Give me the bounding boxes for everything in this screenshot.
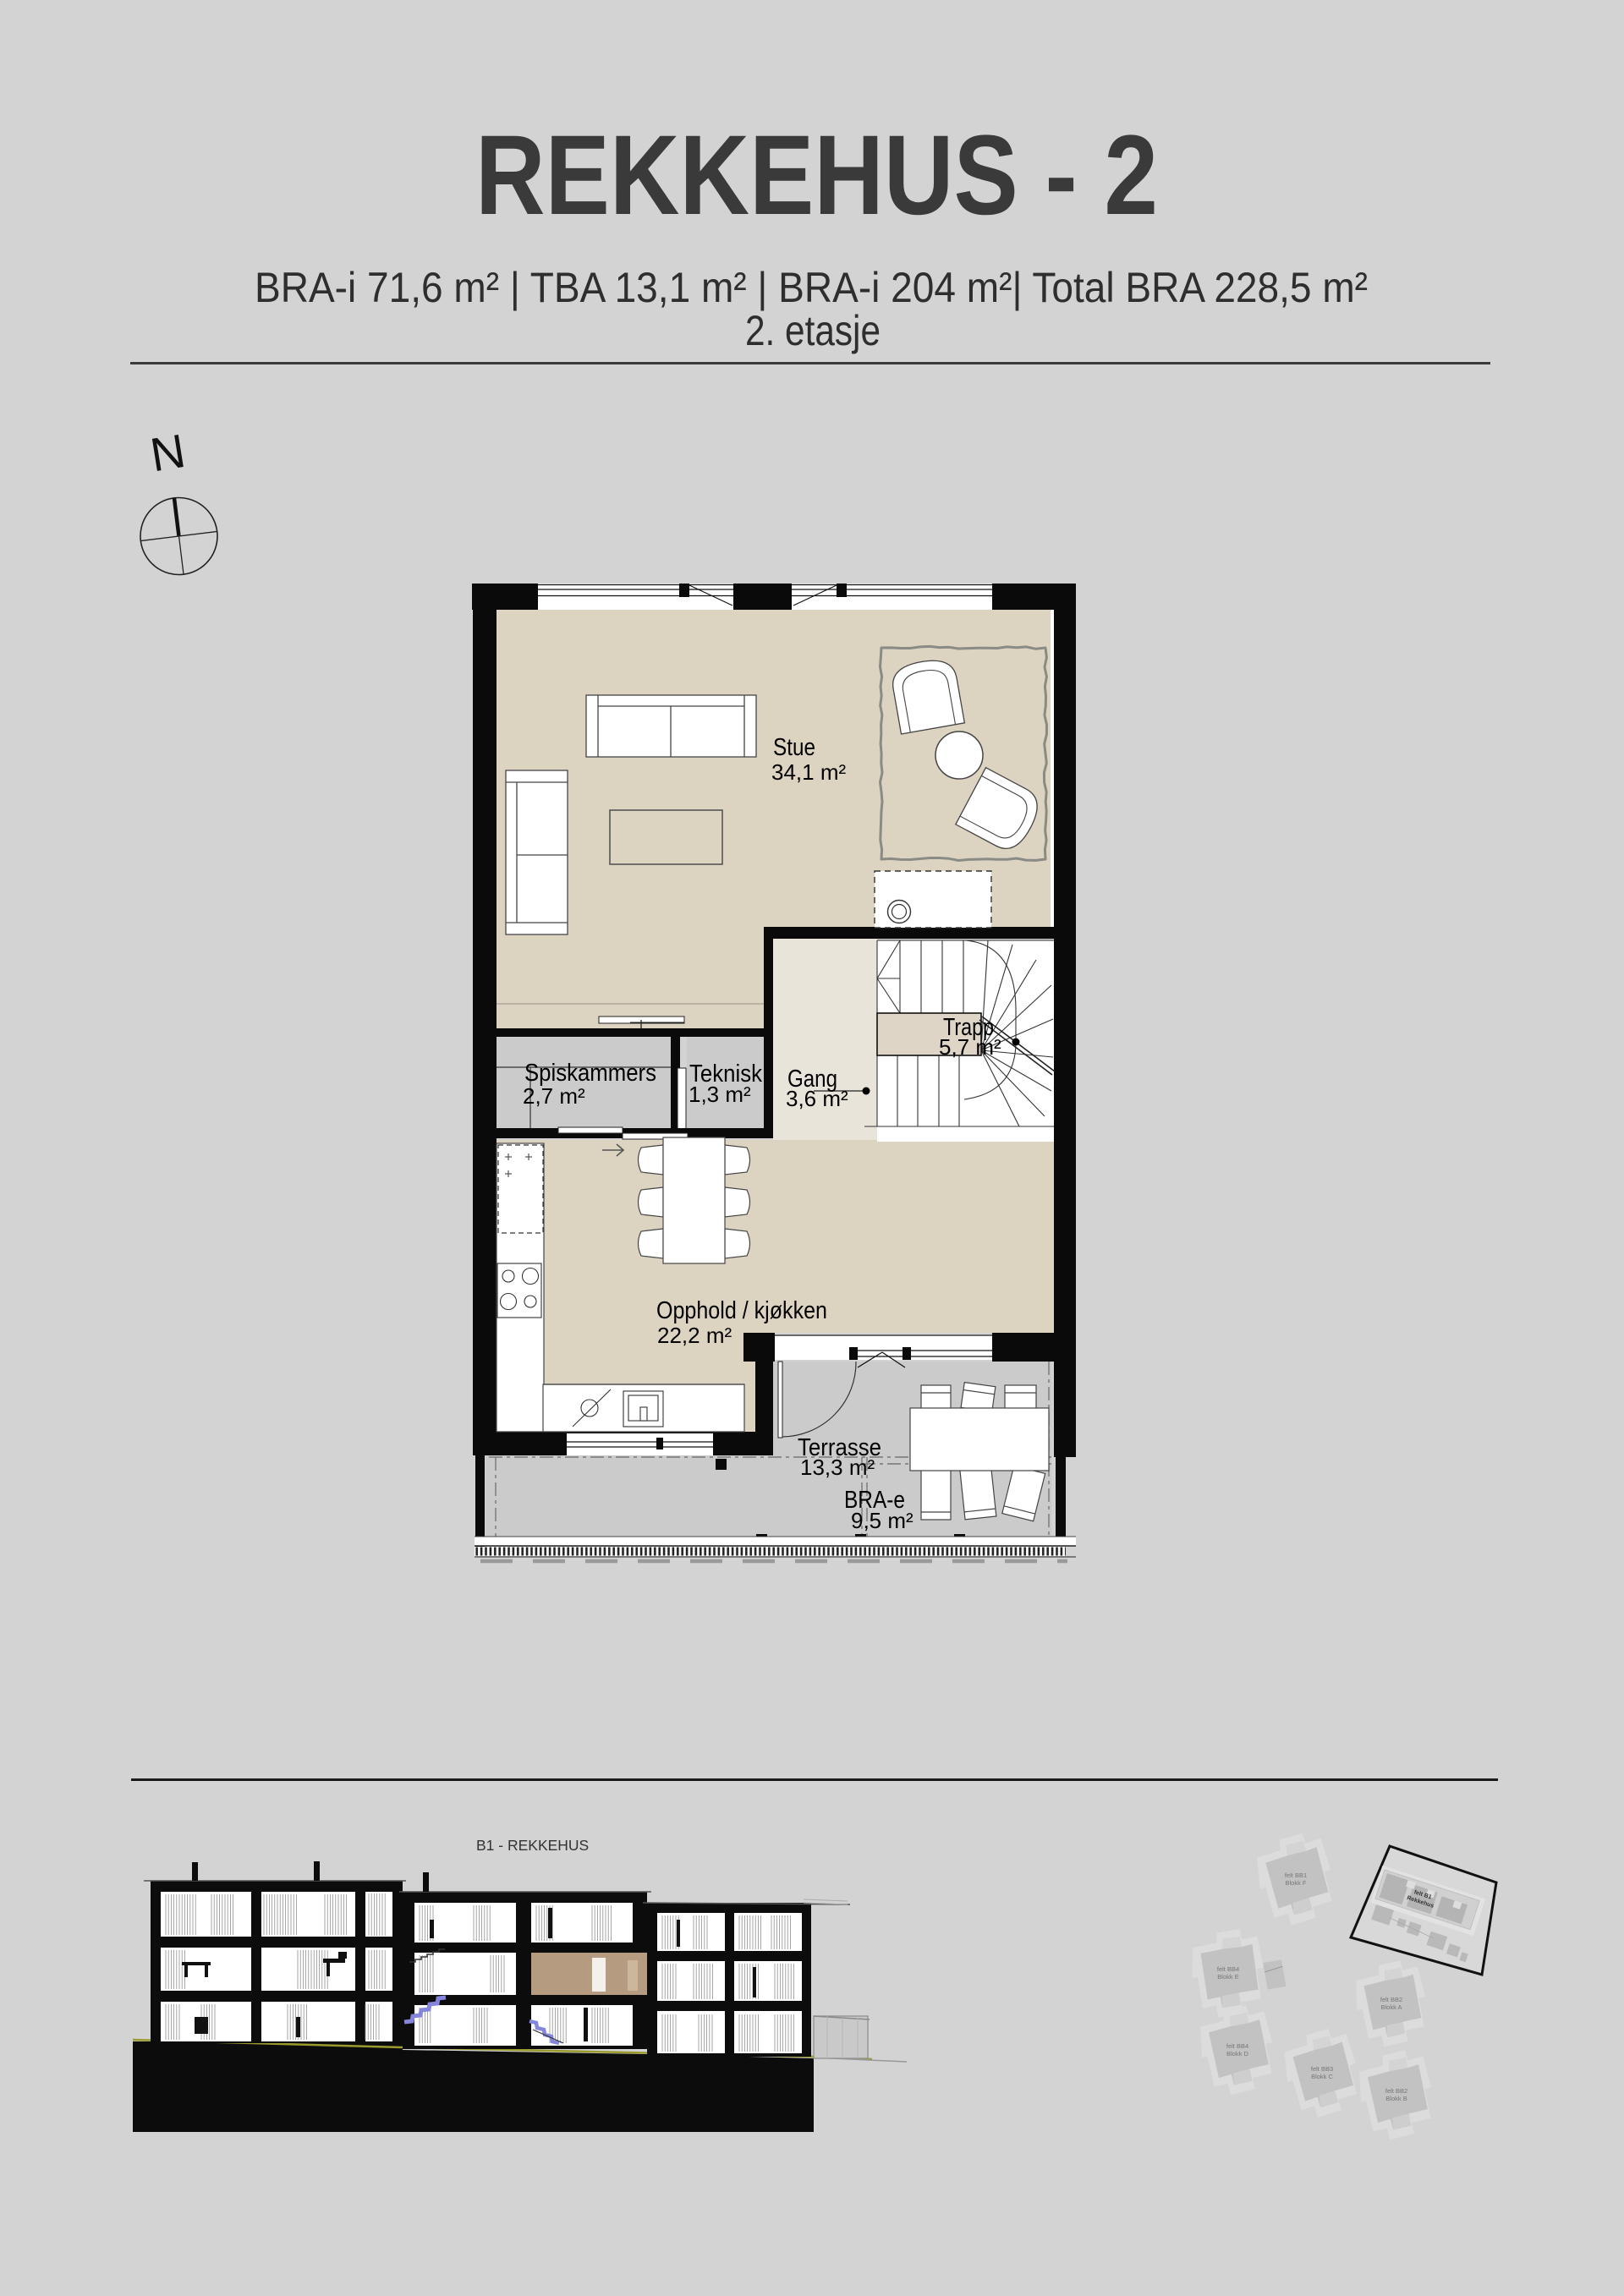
svg-text:felt BB4: felt BB4 [1217, 1965, 1239, 1973]
svg-text:felt BB1: felt BB1 [1285, 1871, 1307, 1879]
svg-text:Blokk C: Blokk C [1311, 2073, 1333, 2080]
svg-text:Opphold / kjøkken: Opphold / kjøkken [656, 1297, 827, 1324]
svg-text:felt BB2: felt BB2 [1385, 2087, 1407, 2095]
svg-text:felt BB2: felt BB2 [1380, 1996, 1402, 2003]
svg-text:felt BB3: felt BB3 [1311, 2065, 1333, 2073]
svg-text:REKKEHUS - 2: REKKEHUS - 2 [475, 112, 1158, 238]
svg-text:BRA-i 71,6 m² | TBA 13,1 m² |: BRA-i 71,6 m² | TBA 13,1 m² | BRA-i 204 … [255, 264, 1368, 311]
svg-text:1,3 m²: 1,3 m² [689, 1082, 751, 1107]
svg-text:9,5 m²: 9,5 m² [851, 1508, 913, 1533]
svg-text:B1 - REKKEHUS: B1 - REKKEHUS [476, 1837, 589, 1854]
svg-text:felt BB4: felt BB4 [1226, 2042, 1248, 2050]
svg-text:Blokk A: Blokk A [1380, 2003, 1402, 2011]
svg-text:2. etasje: 2. etasje [745, 307, 881, 354]
svg-text:22,2 m²: 22,2 m² [657, 1323, 732, 1348]
svg-text:Blokk B: Blokk B [1385, 2095, 1407, 2102]
svg-text:Blokk E: Blokk E [1217, 1973, 1238, 1981]
svg-text:34,1 m²: 34,1 m² [771, 759, 846, 785]
svg-text:Blokk F: Blokk F [1285, 1879, 1306, 1887]
svg-text:Blokk D: Blokk D [1226, 2050, 1248, 2058]
svg-text:3,6 m²: 3,6 m² [786, 1086, 848, 1111]
svg-text:13,3 m²: 13,3 m² [800, 1455, 875, 1480]
svg-text:Stue: Stue [773, 734, 815, 761]
svg-text:2,7 m²: 2,7 m² [523, 1083, 585, 1109]
svg-text:5,7 m²: 5,7 m² [939, 1034, 1001, 1060]
